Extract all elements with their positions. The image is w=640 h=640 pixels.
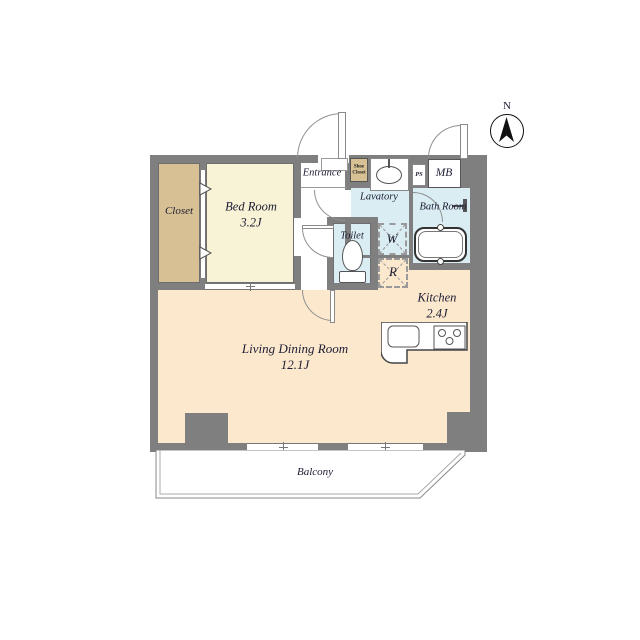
toilet-label: Toilet [340,229,364,242]
hall-living-door-leaf [330,290,335,323]
shoe-closet-label: Shoe Closet [351,164,368,176]
meter-box-label: MB [436,166,453,180]
wall-bedroom-east-bottom [294,256,301,290]
wall-bedroom-south-a [158,283,205,290]
entrance-label: Entrance [303,166,342,179]
bedroom-size: 3.2J [240,215,261,229]
kitchen-counter [381,322,471,368]
wall-right [470,155,487,452]
kitchen-size: 2.4J [426,306,447,320]
compass-north-label: N [503,100,511,114]
entrance-door-arc [297,113,342,158]
kitchen-label: Kitchen 2.4J [418,290,457,321]
pillar-bottom-left [185,413,228,443]
kitchen-sink [388,326,419,347]
closet-door-arrow-top [199,182,213,196]
lavatory-label: Lavatory [360,190,398,203]
wall-left [150,155,158,452]
balcony-label: Balcony [297,466,333,480]
wall-toilet-south [331,283,377,290]
mb-door-arc [428,125,461,158]
north-arrow-icon [491,115,522,146]
kitchen-area-right [409,270,470,290]
bathtub-drain-bottom [437,258,444,265]
wall-toilet-east [371,217,378,290]
window-left-cross [279,447,288,448]
bathroom-label: Bath Room [420,200,467,213]
pipe-space-label: PS [415,171,423,179]
vanity-basin [376,166,402,184]
kitchen-name: Kitchen [418,290,457,304]
pillar-bottom-right [447,412,487,452]
vanity-faucet [388,159,390,168]
wall-top-left [150,155,318,163]
refrigerator-label: R [389,264,397,280]
entrance-door-leaf [338,112,346,159]
toilet-bowl [342,240,363,271]
living-dining-size: 12.1J [281,357,310,372]
bedroom-label: Bed Room 3.2J [225,199,277,230]
wall-bedroom-east-top [294,163,301,218]
bedroom-slider-cross [246,286,255,287]
closet-door-arrow-bottom [199,246,213,260]
bathtub-inner [418,231,463,258]
compass [490,114,524,148]
bedroom-name: Bed Room [225,199,277,213]
washer-label: W [387,231,398,247]
living-dining-name: Living Dining Room [242,341,348,356]
window-right-cross [381,447,390,448]
entrance-step-line [301,187,347,188]
toilet-tank [339,271,366,283]
living-dining-label: Living Dining Room 12.1J [242,341,348,374]
bathtub-drain-top [437,224,444,231]
mb-door-leaf [460,124,468,159]
closet-area [158,163,200,283]
floor-plan: N Closet Bed Room 3.2J Entrance Shoe Clo… [0,0,640,640]
closet-label: Closet [165,205,193,219]
